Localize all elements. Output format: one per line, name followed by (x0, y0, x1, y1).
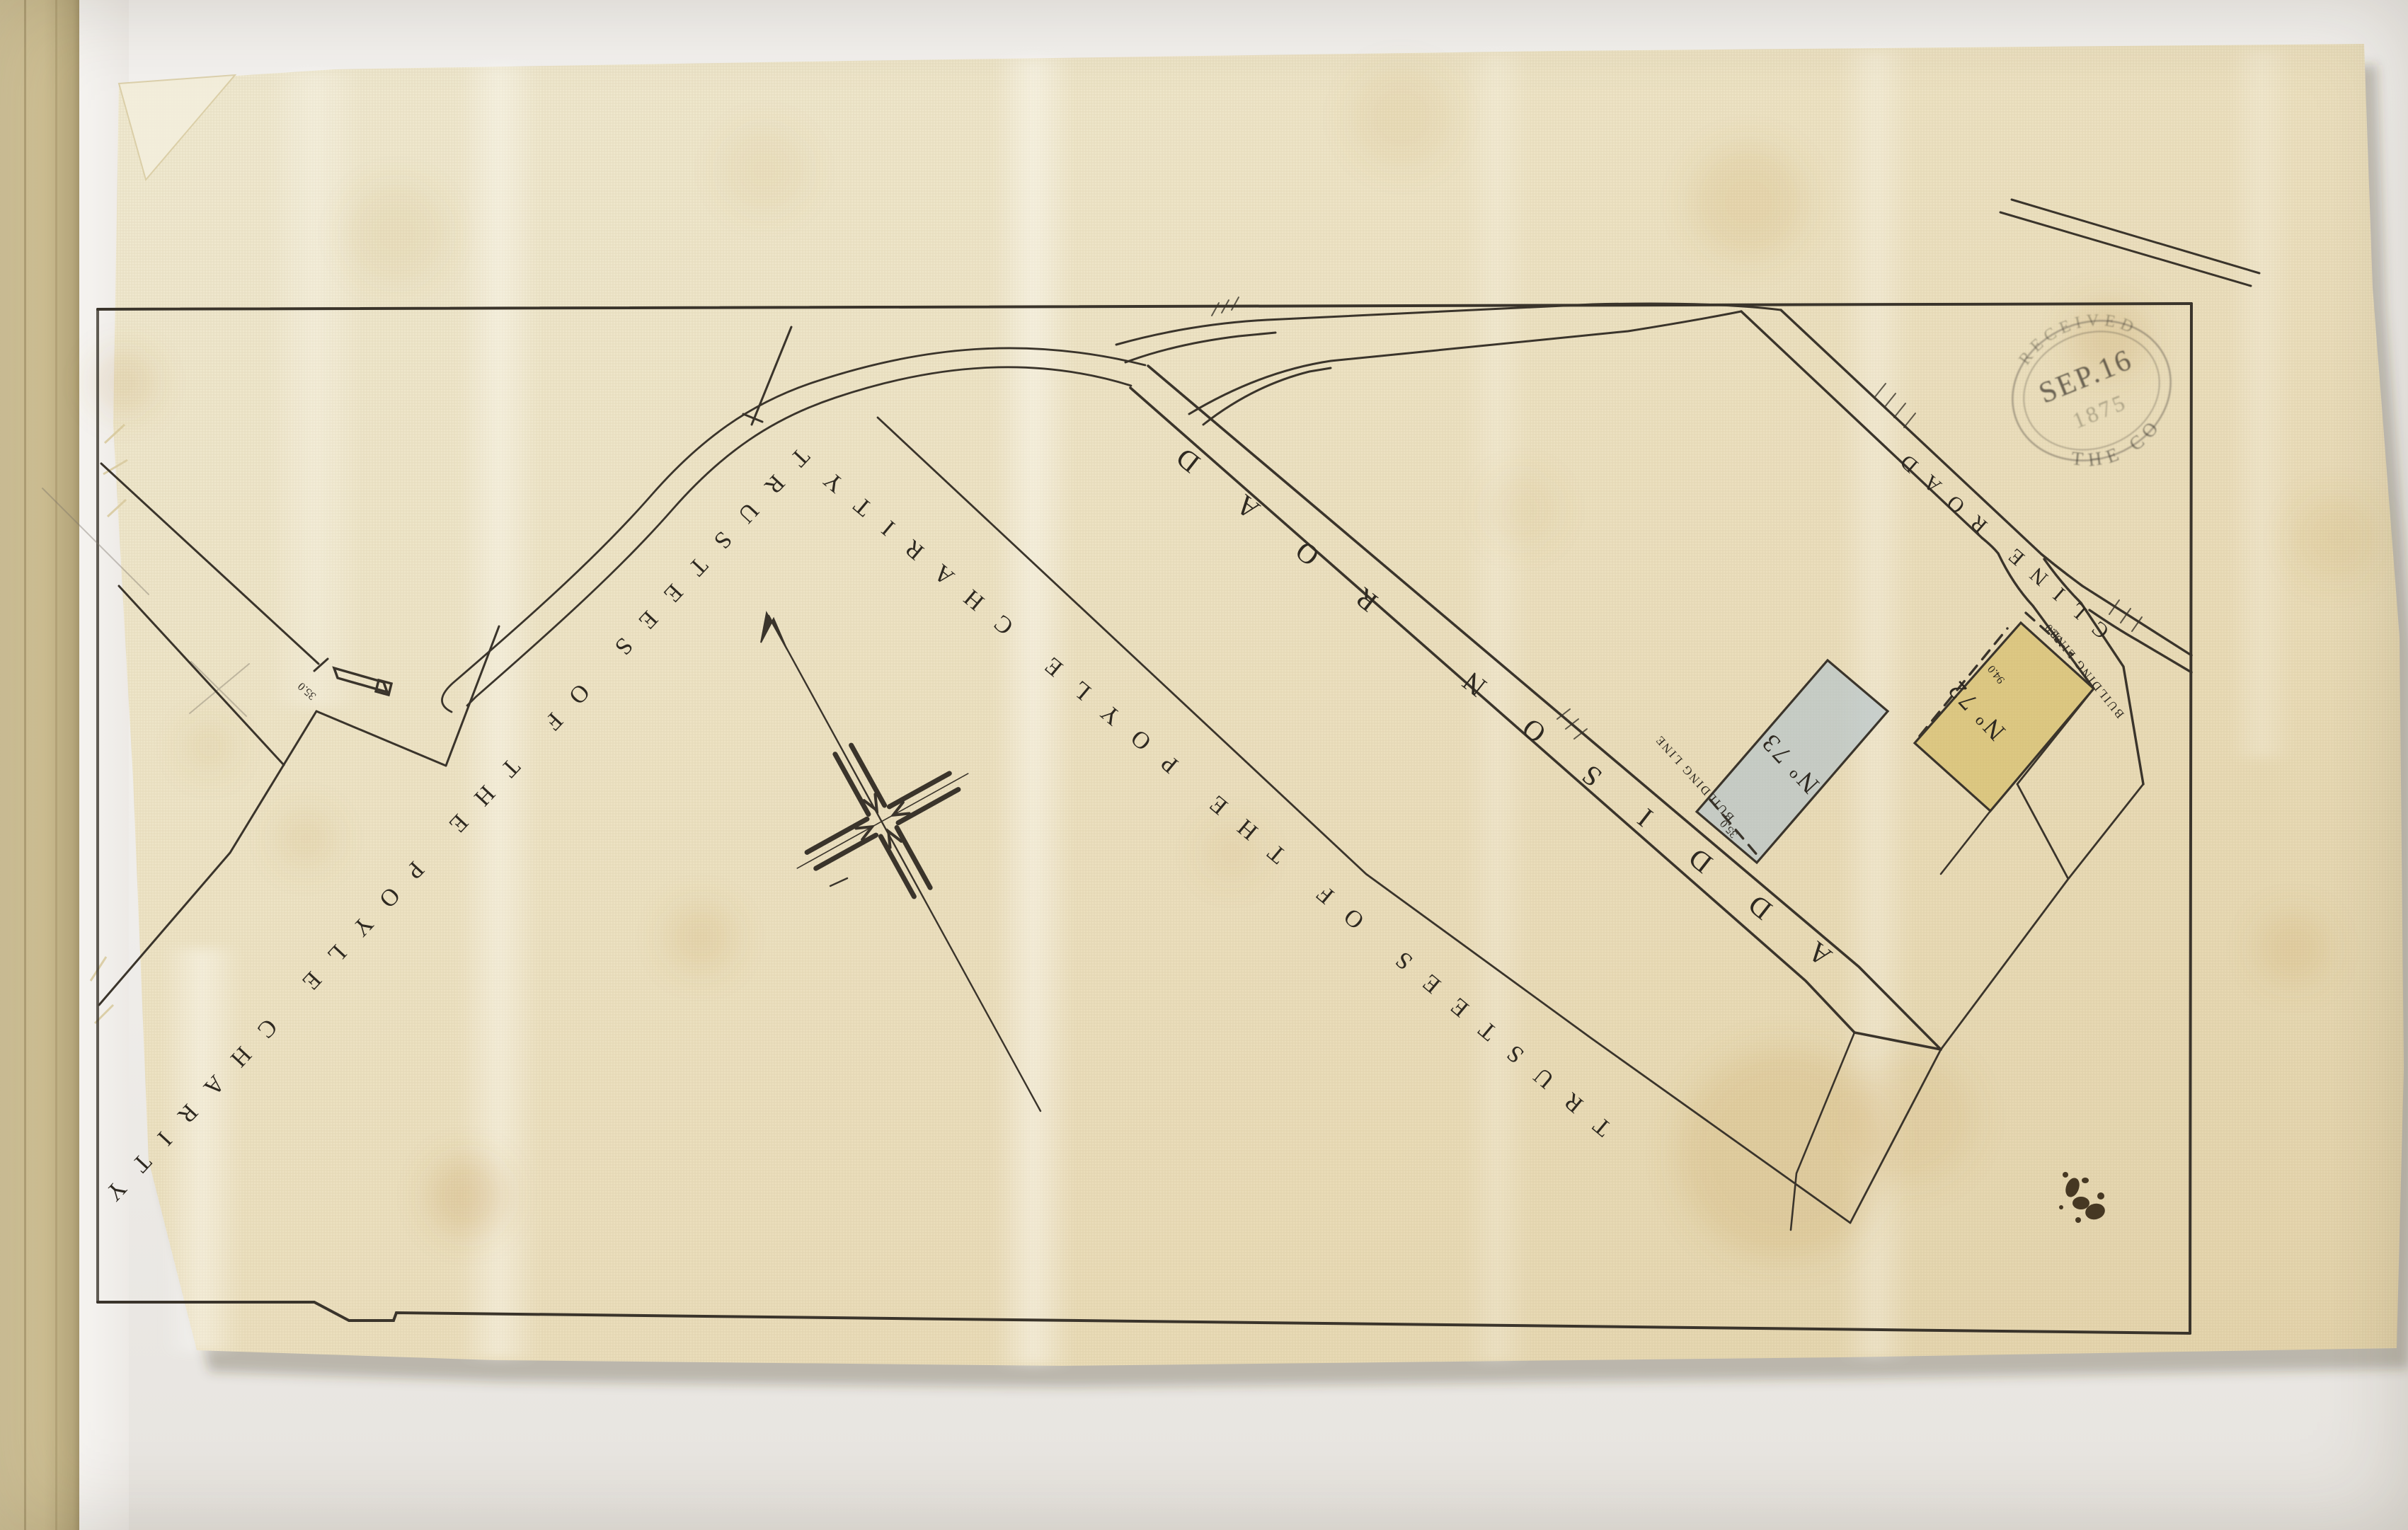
plan-canvas: TRUSTEES OF THE POYLE CHARITY TRUSTEES O… (0, 0, 2408, 1530)
photographed-plan: TRUSTEES OF THE POYLE CHARITY TRUSTEES O… (0, 0, 2408, 1530)
